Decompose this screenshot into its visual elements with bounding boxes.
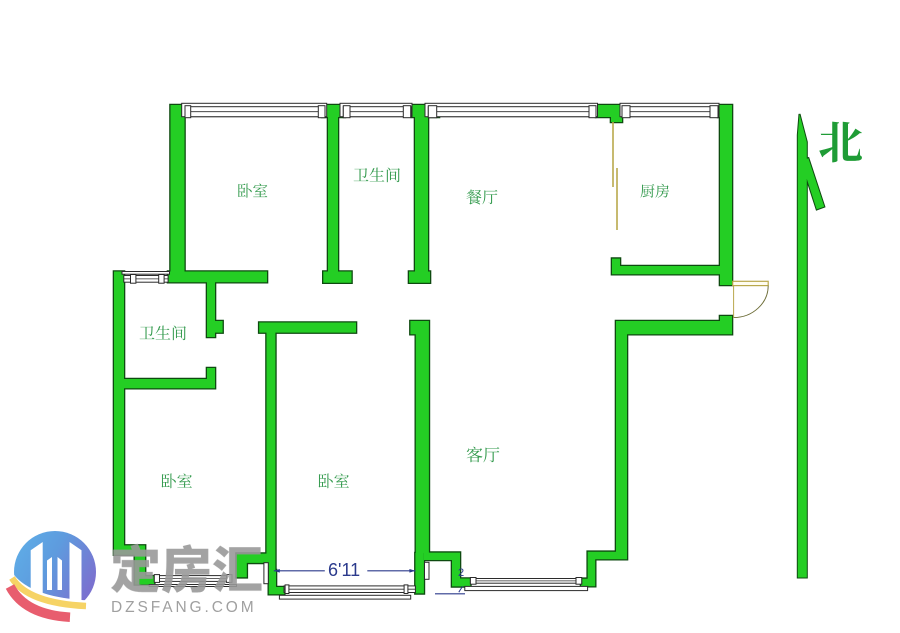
svg-text:6'11: 6'11: [328, 560, 360, 580]
svg-text:DZSFANG.COM: DZSFANG.COM: [111, 599, 257, 616]
svg-text:2: 2: [458, 567, 464, 579]
